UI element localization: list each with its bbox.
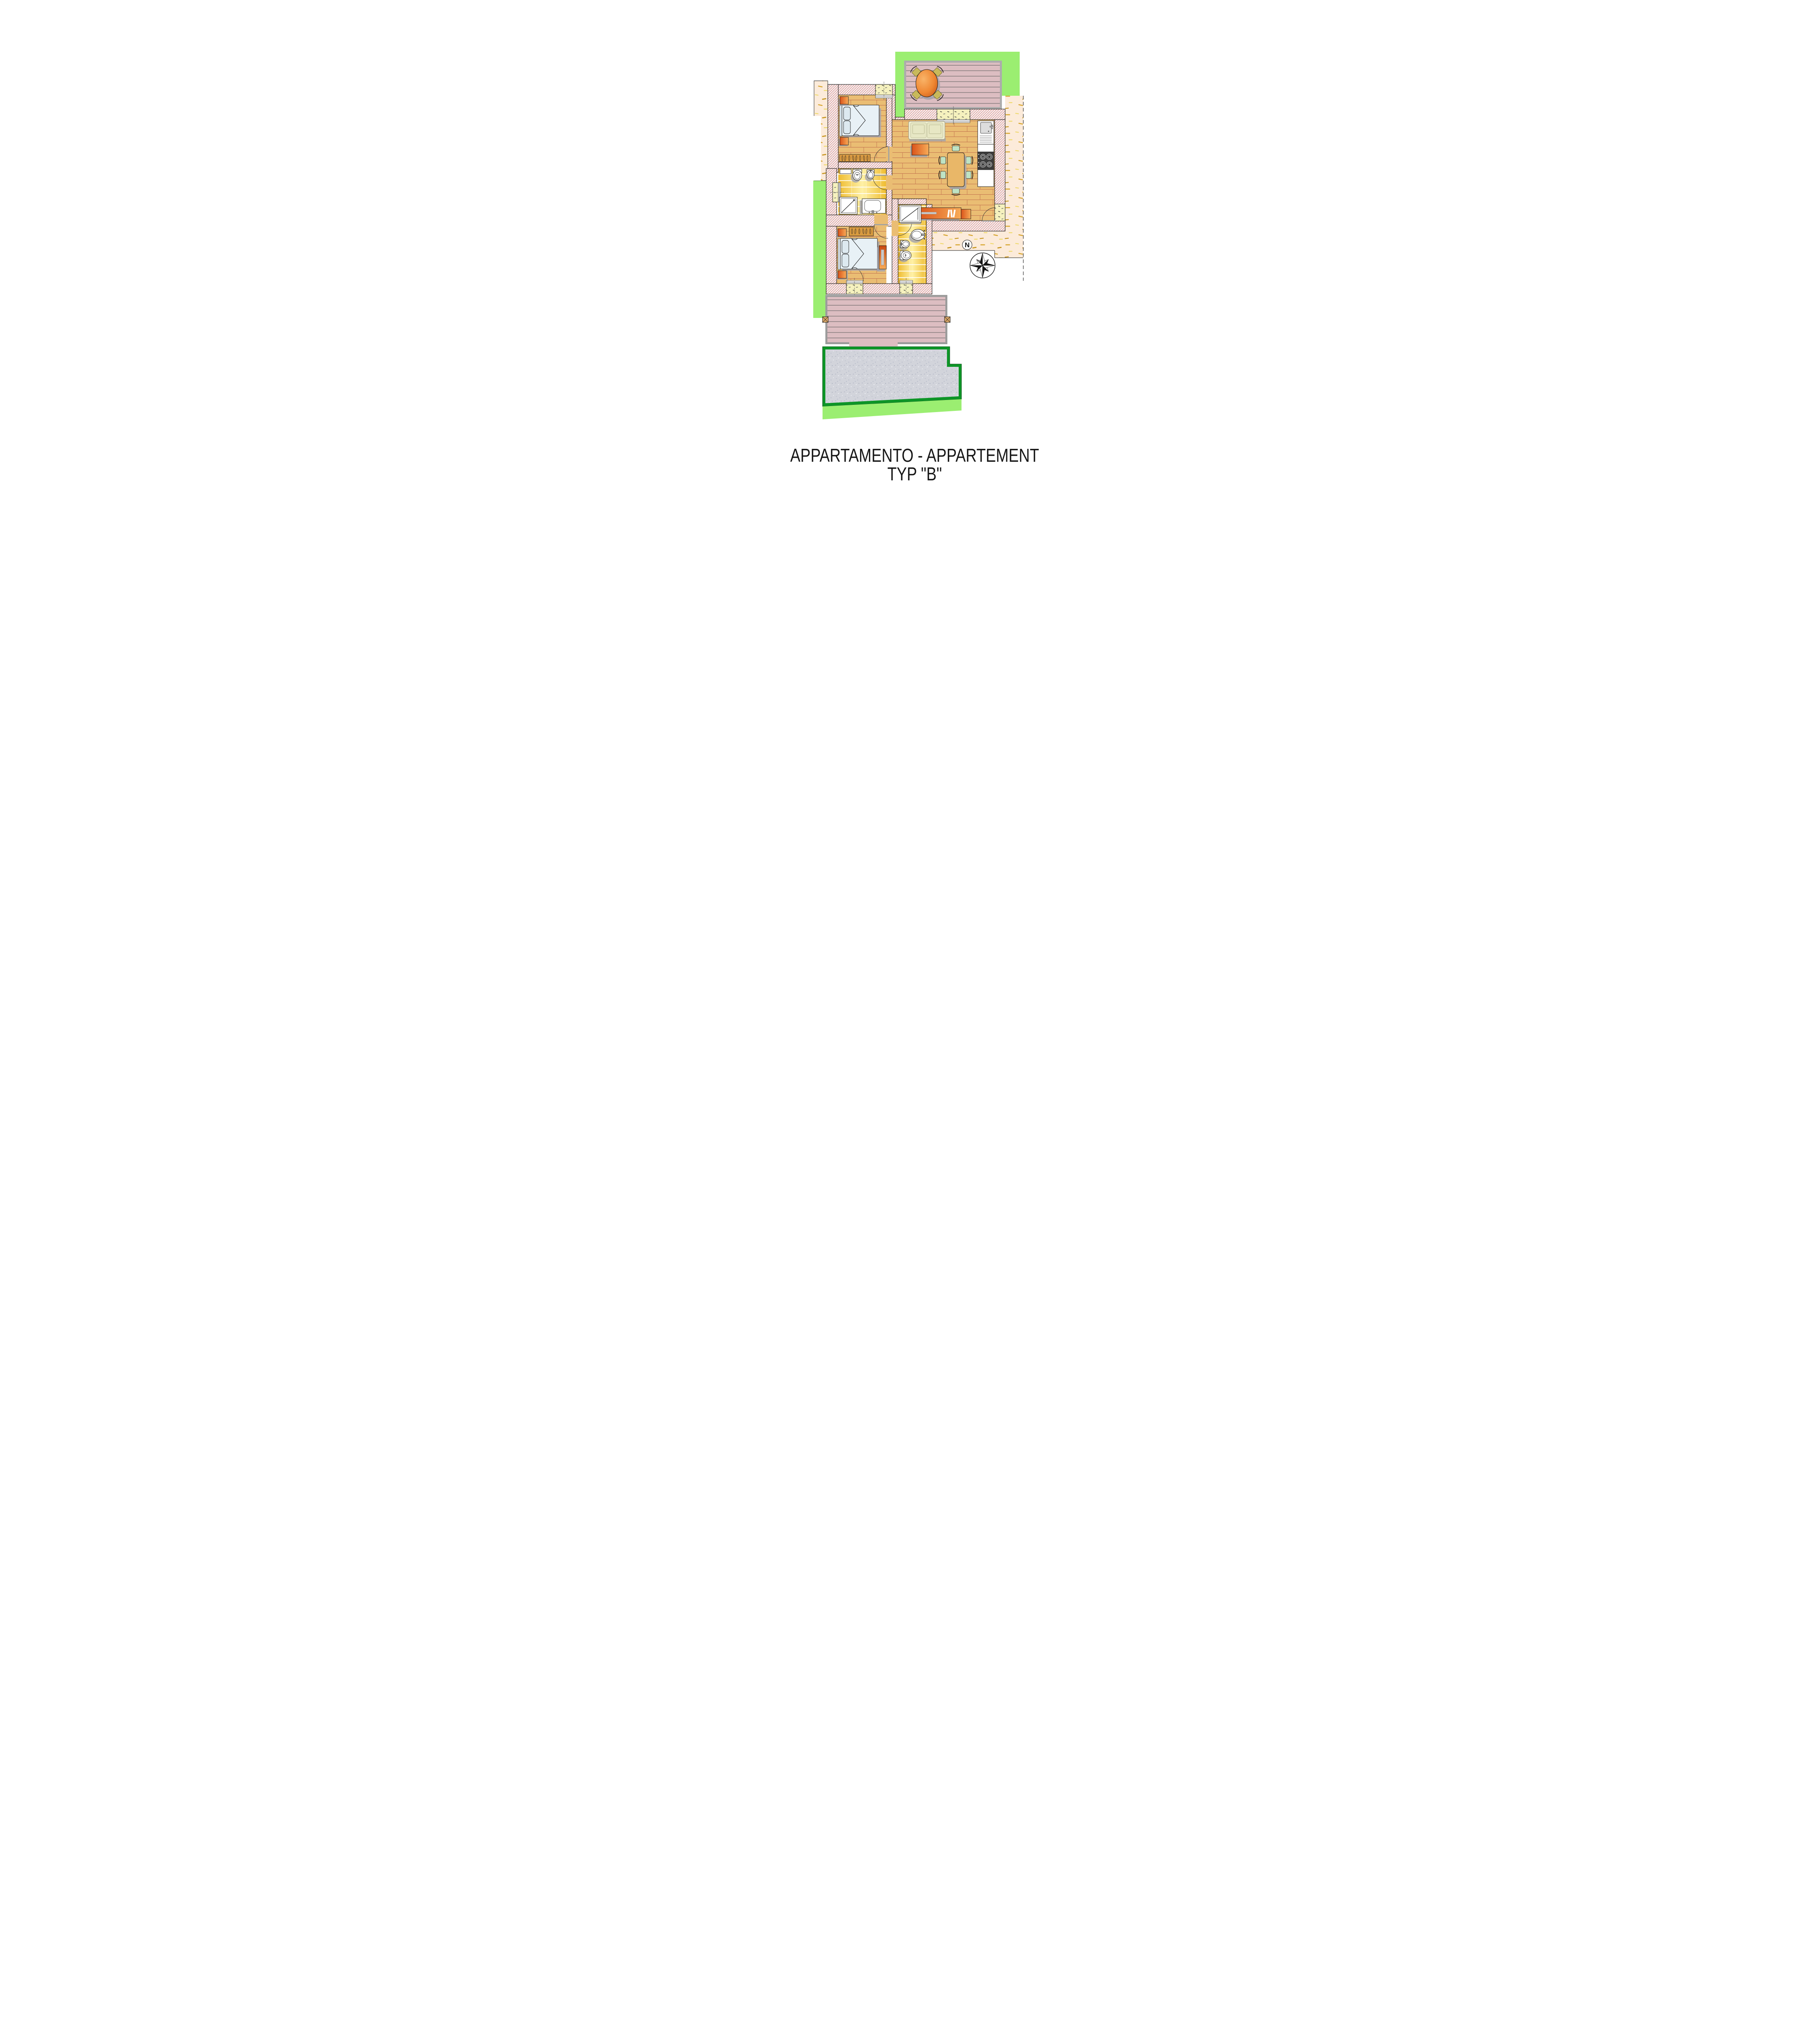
toilet-icon — [853, 169, 862, 181]
counter-icon — [978, 144, 994, 152]
coffee-table-icon — [912, 144, 929, 155]
bidet-icon — [867, 170, 874, 179]
nightstand-icon — [840, 137, 848, 145]
bedroom-2-french-door — [846, 278, 863, 297]
lawn-left-strip — [813, 181, 826, 318]
dining-table-icon — [947, 153, 964, 187]
bidet-icon — [901, 240, 910, 248]
shower-icon — [840, 197, 857, 214]
deck-step — [849, 342, 898, 346]
nightstand-icon — [840, 97, 848, 104]
stove-4-burner-icon — [978, 152, 994, 170]
wardrobe-hangers-icon — [849, 227, 873, 236]
sofa-icon — [909, 121, 946, 141]
nightstand-icon — [838, 271, 846, 278]
entry-door-threshold — [995, 204, 1005, 221]
deck-post-icon — [823, 317, 828, 322]
kitchen-sink-icon — [978, 121, 994, 144]
headboard — [840, 105, 842, 136]
books-icon — [947, 210, 956, 217]
nightstand-icon — [838, 229, 846, 236]
north-label: N — [965, 241, 970, 249]
sand-notch-white — [813, 116, 821, 181]
deck-post-icon — [945, 317, 950, 322]
pillow-icon — [844, 107, 850, 120]
caption-line-2: TYP "B" — [887, 463, 942, 484]
shower-icon — [899, 205, 921, 224]
dresser-icon — [877, 246, 886, 271]
gravel-patio — [825, 349, 959, 403]
terrace-round-table — [916, 69, 938, 97]
wardrobe-hangers-icon — [840, 154, 870, 162]
upper-terrace — [904, 61, 1002, 109]
toilet-icon — [900, 251, 911, 260]
caption-line-1: APPARTAMENTO - APPARTEMENT — [790, 445, 1039, 465]
shelf-icon — [840, 169, 851, 174]
counter-icon — [978, 170, 994, 187]
floor-plan-canvas: N APPARTAMENTO - APPARTEMENT TYP "B" — [728, 0, 1092, 517]
lower-outdoor — [823, 295, 962, 419]
headboard — [838, 239, 840, 269]
sideboard-icon — [915, 208, 971, 221]
bedroom-1-window — [875, 82, 892, 101]
pillow-icon — [842, 254, 849, 267]
caption: APPARTAMENTO - APPARTEMENT TYP "B" — [790, 445, 1039, 484]
floor-plan-page: N APPARTAMENTO - APPARTEMENT TYP "B" — [728, 0, 1092, 517]
pillow-icon — [842, 240, 849, 253]
kitchen-unit — [978, 121, 994, 187]
washbasin-icon — [860, 199, 886, 214]
bathroom-2-window — [900, 278, 913, 297]
pillow-icon — [844, 121, 850, 134]
